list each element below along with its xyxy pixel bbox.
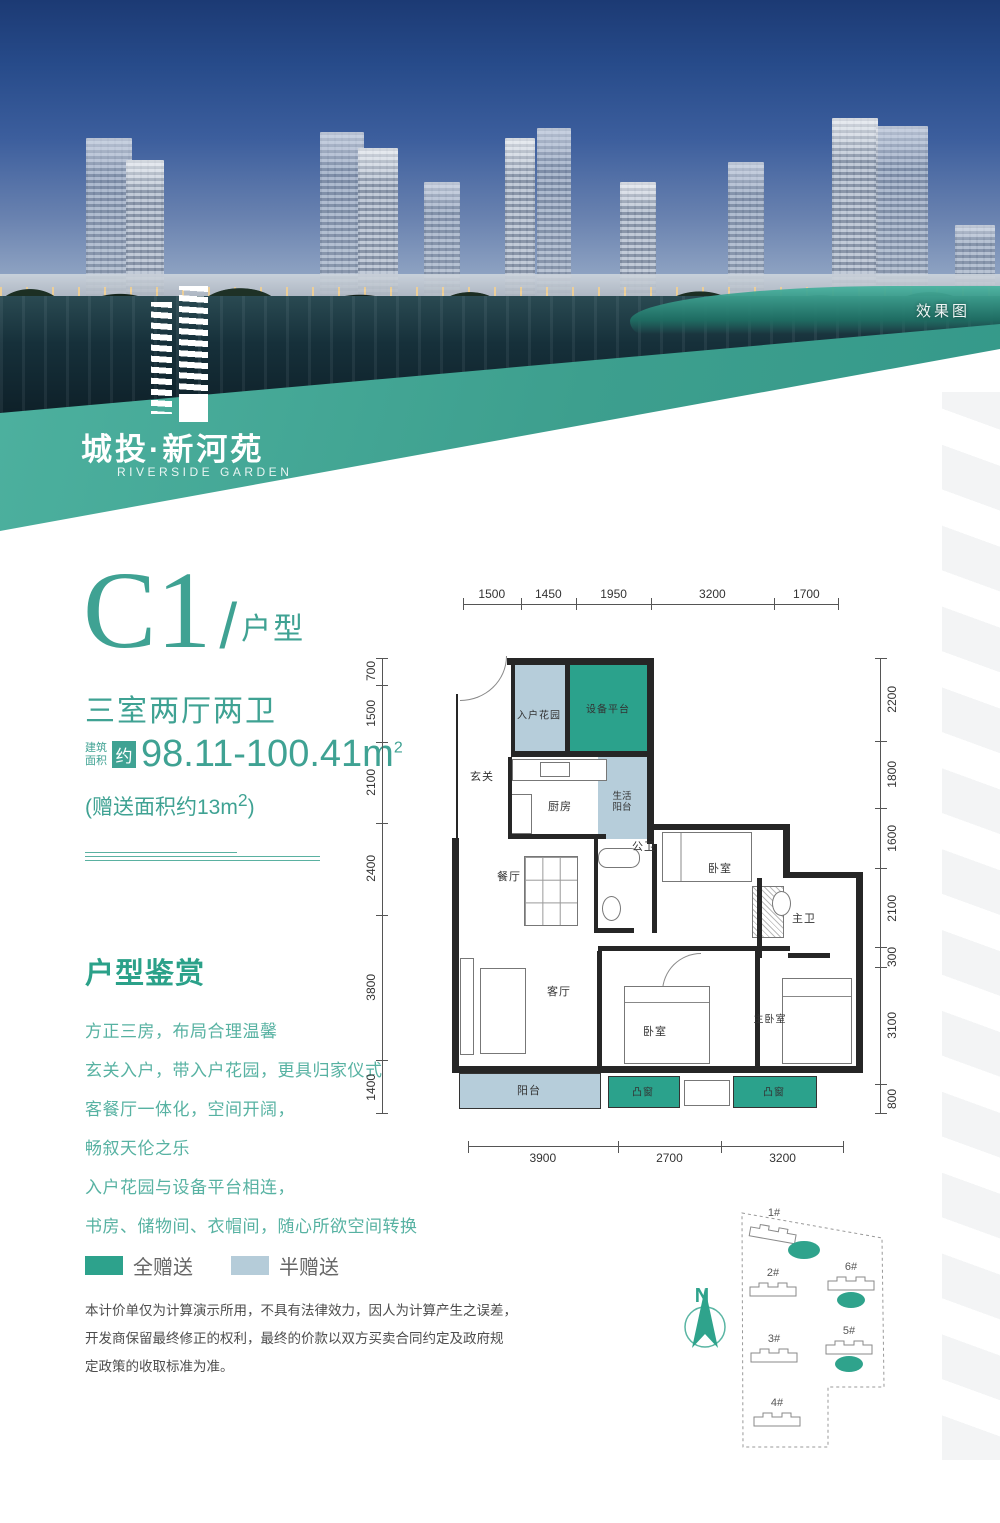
area-row: 建筑 面积 约 98.11-100.41m2 <box>85 733 403 776</box>
building-outline <box>828 1277 874 1290</box>
furniture-bed <box>662 832 752 882</box>
dimension-segment: 1600 <box>881 808 903 868</box>
dimension-segment: 1950 <box>576 584 651 604</box>
building-outline <box>750 1283 796 1296</box>
bonus-superscript: 2 <box>238 790 248 810</box>
section-divider <box>85 852 237 853</box>
wall <box>452 1066 863 1073</box>
building-outline <box>749 1223 797 1244</box>
room-label-service-balcony: 生活阳台 <box>610 791 634 813</box>
room-label-balcony: 阳台 <box>517 1082 541 1098</box>
room-label-guest-bath: 公卫 <box>632 838 656 854</box>
north-arrow: N <box>685 1285 725 1348</box>
dim-value: 2100 <box>364 769 378 796</box>
dimension-segment: 1450 <box>521 584 577 604</box>
room-label-equipment-platform: 设备平台 <box>586 701 630 716</box>
room-label-foyer: 玄关 <box>470 768 494 784</box>
full-gift-label: 全赠送 <box>133 1251 193 1280</box>
furniture-toilet <box>602 896 621 921</box>
dim-value: 1600 <box>885 825 899 852</box>
building-label: 4# <box>771 1397 784 1409</box>
unit-code-block: C1 / 户型 <box>83 550 305 662</box>
area-label-line1: 建筑 <box>85 742 107 755</box>
dimension-segment: 3200 <box>721 1147 844 1169</box>
approx-badge: 约 <box>112 741 136 768</box>
half-gift-label: 半赠送 <box>279 1251 339 1280</box>
appreciation-line: 畅叙天伦之乐 <box>85 1129 418 1168</box>
room-label-bedroom-a: 卧室 <box>708 860 732 876</box>
building-label: 1# <box>768 1207 781 1219</box>
wall <box>511 751 651 757</box>
dim-value: 1800 <box>885 761 899 788</box>
gift-legend: 全赠送 半赠送 <box>85 1251 339 1280</box>
dimension-segment: 2200 <box>881 658 903 741</box>
wall <box>788 953 830 958</box>
bonus-area-note: (赠送面积约13m2) <box>85 790 255 821</box>
bonus-text: (赠送面积约13m <box>85 796 238 819</box>
dim-value: 300 <box>885 947 899 967</box>
building-outline <box>826 1341 872 1354</box>
dimension-segment: 2100 <box>881 868 903 947</box>
room-label-dining: 餐厅 <box>497 868 521 884</box>
room-label-living: 客厅 <box>547 983 571 999</box>
wall <box>597 951 602 1066</box>
dim-value: 800 <box>885 1089 899 1109</box>
dimension-chain-left: 700 1500 2100 2400 3800 1400 <box>360 658 383 1114</box>
building-label: 6# <box>845 1261 858 1273</box>
layout-summary: 三室两厅两卫 <box>85 686 277 730</box>
furniture-dining-table <box>524 856 578 926</box>
disclaimer-line: 定政策的收取标准为准。 <box>85 1353 517 1381</box>
dimension-segment: 1800 <box>881 741 903 809</box>
dim-value: 1400 <box>364 1074 378 1101</box>
wall <box>783 824 790 878</box>
dim-value: 3200 <box>699 587 726 604</box>
dimension-segment: 2100 <box>360 742 382 822</box>
dimension-segment: 700 <box>360 658 382 685</box>
dim-value: 1950 <box>600 587 627 604</box>
wall <box>452 838 459 1073</box>
area-label: 建筑 面积 <box>85 742 107 768</box>
dimension-segment: 3800 <box>360 915 382 1061</box>
wall <box>652 824 790 830</box>
appreciation-line: 书房、储物间、衣帽间，随心所欲空间转换 <box>85 1207 418 1246</box>
wall <box>508 834 606 839</box>
area-number: 98.11-100.41m <box>141 733 394 775</box>
bonus-close: ) <box>248 796 255 819</box>
dim-value: 1450 <box>535 587 562 604</box>
appreciation-line: 入户花园与设备平台相连， <box>85 1168 418 1207</box>
dimension-segment: 300 <box>881 947 903 967</box>
disclaimer-line: 本计价单仅为计算演示所用，不具有法律效力，因人为计算产生之误差， <box>85 1297 517 1325</box>
dimension-chain-bottom: 3900 2700 3200 <box>468 1146 844 1169</box>
furniture-toilet <box>772 891 791 916</box>
dim-value: 2700 <box>656 1147 683 1168</box>
disclaimer-line: 开发商保留最终修正的权利，最终的价款以双方买卖合同约定及政府规 <box>85 1325 517 1353</box>
door-arc <box>460 656 507 701</box>
wall <box>652 844 657 933</box>
room-label-master-bedroom: 主卧室 <box>754 1011 787 1026</box>
dim-value: 1700 <box>793 587 820 604</box>
area-label-line2: 面积 <box>85 755 107 768</box>
furniture-ac-unit <box>684 1080 730 1106</box>
wall <box>507 658 653 665</box>
dimension-segment: 800 <box>881 1084 903 1114</box>
dim-value: 2200 <box>885 686 899 713</box>
dim-value: 3200 <box>769 1147 796 1168</box>
furniture-sink <box>540 762 570 777</box>
slash-divider: / <box>219 594 237 658</box>
dimension-segment: 1700 <box>774 584 839 604</box>
furniture-tv-cabinet <box>460 958 474 1055</box>
dimension-segment: 2400 <box>360 823 382 915</box>
half-gift-swatch <box>231 1256 269 1275</box>
site-plan: N 1# 2# 6# 3# 5# 4# <box>652 1190 982 1490</box>
render-label: 效果图 <box>916 300 970 321</box>
wall <box>755 951 760 1066</box>
unit-type-label: 户型 <box>241 604 305 648</box>
room-label-master-bath: 主卫 <box>792 910 816 926</box>
dimension-segment: 2700 <box>618 1147 722 1169</box>
highlight-unit <box>835 1356 863 1372</box>
wall <box>757 878 762 958</box>
wall <box>456 694 458 840</box>
full-gift-swatch <box>85 1256 123 1275</box>
wall <box>594 928 634 933</box>
room-label-bay-window: 凸窗 <box>632 1084 654 1099</box>
area-superscript: 2 <box>394 739 403 756</box>
dimension-segment: 1400 <box>360 1060 382 1114</box>
unit-code: C1 <box>83 558 211 663</box>
room-label-bedroom-b: 卧室 <box>643 1023 667 1039</box>
dimension-segment: 1500 <box>463 584 521 604</box>
dimension-segment: 3200 <box>651 584 774 604</box>
highlight-unit <box>788 1241 820 1259</box>
appreciation-title: 户型鉴赏 <box>85 950 205 992</box>
dimension-chain-right: 2200 1800 1600 2100 300 3100 800 <box>880 658 903 1114</box>
highlight-unit <box>837 1292 865 1308</box>
dim-value: 2100 <box>885 895 899 922</box>
room-label-entry-garden: 入户花园 <box>517 707 561 722</box>
brand-name-en: RIVERSIDE GARDEN <box>117 465 292 479</box>
dim-value: 2400 <box>364 855 378 882</box>
legend-item-half: 半赠送 <box>231 1251 339 1280</box>
building-label: 3# <box>768 1333 781 1345</box>
building-label: 2# <box>767 1267 780 1279</box>
section-divider <box>85 856 320 857</box>
wall <box>565 658 570 754</box>
wall <box>594 839 598 933</box>
dimension-segment: 1500 <box>360 685 382 742</box>
wall <box>783 872 863 878</box>
dim-value: 1500 <box>364 700 378 727</box>
furniture-sofa <box>480 968 526 1054</box>
room-label-kitchen: 厨房 <box>548 798 572 814</box>
furniture-stove <box>510 794 532 834</box>
building-outline <box>754 1413 800 1426</box>
wall <box>508 757 512 839</box>
dimension-segment: 3100 <box>881 967 903 1084</box>
dim-value: 3800 <box>364 974 378 1001</box>
room-label-bay-window: 凸窗 <box>763 1084 785 1099</box>
dim-value: 3100 <box>885 1012 899 1039</box>
building-label: 5# <box>843 1325 856 1337</box>
wall <box>856 872 863 1072</box>
dimension-chain-top: 1500 1450 1950 3200 1700 <box>463 584 839 605</box>
legend-item-full: 全赠送 <box>85 1251 193 1280</box>
section-divider <box>85 860 320 861</box>
floor-plan: 玄关 入户花园 设备平台 厨房 生活阳台 餐厅 公卫 卧室 主卫 客厅 卧室 主… <box>452 656 864 1112</box>
building-outline <box>751 1349 797 1362</box>
dim-value: 3900 <box>529 1147 556 1168</box>
furniture-bed <box>624 986 710 1064</box>
brand-name-cn: 城投·新河苑 <box>81 424 264 469</box>
logo-towers-icon <box>151 302 172 414</box>
logo-towers-icon <box>179 286 208 422</box>
disclaimer: 本计价单仅为计算演示所用，不具有法律效力，因人为计算产生之误差， 开发商保留最终… <box>85 1297 517 1381</box>
wall <box>511 658 515 756</box>
dimension-segment: 3900 <box>468 1147 618 1169</box>
dim-value: 1500 <box>478 587 505 604</box>
furniture-bed <box>782 978 852 1064</box>
dim-value: 700 <box>364 661 378 681</box>
